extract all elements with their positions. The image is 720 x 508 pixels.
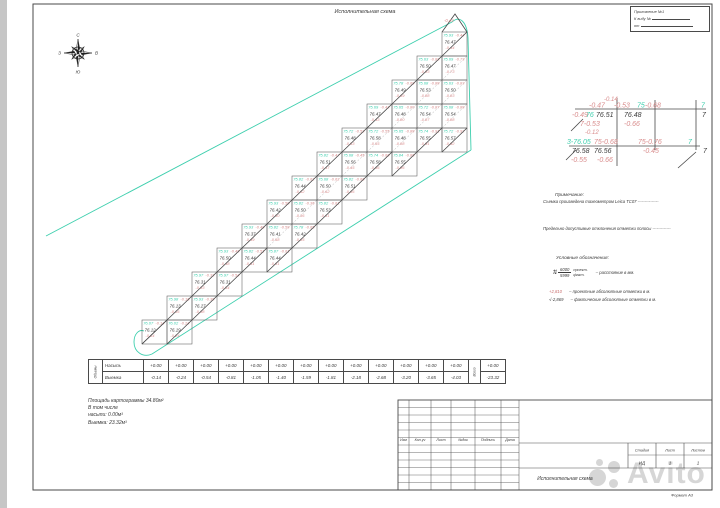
fact-elevation: 75.78 (293, 225, 304, 230)
distance-fact-value: 5999 (558, 273, 571, 278)
inset-text: 75-0.68 (594, 139, 618, 146)
work-elevation: -0.80 (405, 105, 415, 110)
inset-text: 7-0.53 (580, 121, 600, 128)
title-block-header: Кол.уч (415, 438, 426, 442)
work-elevation: -0.61 (330, 201, 339, 206)
work-elevation: -0.55 (380, 129, 390, 134)
fact-elevation: 75.72 (368, 129, 379, 134)
volumes-table: ОбъемыНасыпь+0.00+0.00+0.00+0.00+0.00+0.… (88, 359, 506, 384)
sheet-title: Исполнительная схема (280, 9, 450, 15)
design-elevation: 76.48 (395, 111, 407, 116)
fact-elevation: 75.65 (393, 129, 404, 134)
work-elevation: -0.36 (295, 213, 305, 218)
work-elevation: -0.61 (280, 249, 289, 254)
fact-elevation: 75.63 (418, 57, 429, 62)
fact-elevation: 75.82 (293, 201, 304, 206)
title-block-header: Лист (435, 438, 445, 442)
notes-block: Примечание: Съемка произведена тахеометр… (543, 193, 718, 204)
notes-heading: Примечание: (555, 193, 718, 198)
design-elevation: 76.58 (370, 135, 382, 140)
fact-elevation: 75.98 (168, 297, 179, 302)
distance-fraction: 6000 5999 (558, 267, 571, 278)
design-elevation: 76.53 (420, 87, 432, 92)
work-elevation: -0.88 (445, 117, 455, 122)
cut-value: -0.14 (143, 372, 168, 384)
watermark-text: Avito (627, 457, 706, 491)
cut-value: -1.81 (318, 372, 343, 384)
fill-value: +0.00 (418, 360, 443, 372)
design-elevation: 76.41 (270, 231, 282, 236)
fill-value: +0.00 (368, 360, 393, 372)
design-elevation: 76.48 (395, 135, 407, 140)
work-elevation: -0.88 (430, 81, 440, 86)
fact-elevation: 76.02 (168, 321, 179, 326)
cut-value: -4.03 (443, 372, 468, 384)
cut-value: -2.68 (368, 372, 393, 384)
compass-west-label: З (58, 51, 61, 56)
fill-value: +0.00 (243, 360, 268, 372)
work-elevation: -0.73 (445, 69, 455, 74)
work-elevation: -0.83 (455, 81, 465, 86)
work-elevation: -0.62 (320, 189, 330, 194)
fact-elevation: 75.68 (418, 81, 429, 86)
work-elevation: -0.80 (395, 117, 405, 122)
notes-line2: Предельно допустимые отклонения отметки … (543, 226, 718, 231)
legend-marks-item: +2,810 – проектные абсолютные отметки в … (549, 288, 656, 304)
fill-total: +0.00 (480, 360, 505, 372)
fact-elevation: 75.72 (418, 105, 429, 110)
fact-elevation: 75.82 (293, 177, 304, 182)
fact-elevation: 75.82 (318, 201, 329, 206)
fact-elevation: 75.78 (393, 81, 404, 86)
work-elevation: -0.62 (330, 177, 340, 182)
fact-elevation: 75.68 (343, 153, 354, 158)
compass-center (77, 52, 80, 55)
fill-value: +0.00 (218, 360, 243, 372)
cut-value: -0.81 (218, 372, 243, 384)
design-elevation: 76.54 (420, 111, 432, 116)
inset-text: -0.66 (624, 121, 640, 128)
summary-area: Площадь картограммы 34.80м² (88, 398, 163, 405)
work-elevation: -0.91 (430, 129, 439, 134)
fill-row-label: Насыпь (102, 360, 143, 372)
fill-value: +0.00 (268, 360, 293, 372)
legend-distance-item: ⇅ 6000 5999 проект. факт. – расстояние в… (552, 267, 634, 278)
cut-value: -1.40 (268, 372, 293, 384)
fill-value: +0.00 (193, 360, 218, 372)
inset-text: 76 (586, 112, 594, 119)
fill-value: +0.00 (393, 360, 418, 372)
cut-total: -23.32 (480, 372, 505, 384)
inset-line (678, 152, 696, 168)
avito-watermark: Avito (586, 452, 706, 496)
cut-row-label: Выемка (102, 372, 143, 384)
fill-value: +0.00 (318, 360, 343, 372)
work-elevation: -0.58 (280, 225, 290, 230)
inset-text: -0.68 (645, 103, 661, 110)
work-elevation: -0.58 (270, 237, 280, 242)
fact-elevation: 75.82 (343, 177, 354, 182)
title-block-header: Изм (400, 438, 407, 442)
fact-elevation: 75.93 (218, 249, 229, 254)
design-elevation: 76.50 (320, 183, 332, 188)
fact-elevation: 75.82 (243, 249, 254, 254)
inset-text: 7 (701, 103, 706, 110)
cut-value: -3.20 (393, 372, 418, 384)
fact-elevation: 75.68 (443, 105, 454, 110)
compass-south-label: Ю (76, 70, 81, 75)
inset-text: -0.66 (597, 157, 613, 164)
summary-including: В том числе (88, 405, 163, 412)
fill-value: +0.00 (168, 360, 193, 372)
design-elevation: 76.56 (345, 159, 357, 164)
fact-elevation: 75.69 (368, 105, 379, 110)
inset-text: 76.48 (624, 112, 642, 119)
work-elevation: -0.87 (420, 117, 430, 122)
work-elevation: -0.61 (320, 213, 329, 218)
fact-elevation: 75.82 (268, 225, 279, 230)
work-elevation: -0.61 (270, 261, 279, 266)
inset-text: -0.12 (585, 130, 599, 136)
grid-roof (442, 14, 467, 32)
work-elevation: -0.51 (255, 249, 264, 254)
fact-elevation: 75.93 (443, 33, 454, 38)
fact-elevation: 75.72 (443, 129, 454, 134)
work-elevation: -0.36 (305, 201, 315, 206)
work-elevation: -0.88 (455, 105, 465, 110)
inset-text: 7 (703, 148, 708, 155)
work-elevation: -0.73 (455, 57, 465, 62)
inset-text: 75-0.76 (638, 139, 662, 146)
distance-caption: – расстояние в мм. (596, 270, 635, 275)
work-elevation: -0.83 (445, 93, 455, 98)
inset-text: 75 (637, 103, 645, 110)
work-elevation: -0.91 (420, 141, 429, 146)
area-summary: Площадь картограммы 34.80м² В том числе … (88, 398, 163, 427)
distance-fraction-labels: проект. факт. (573, 268, 587, 278)
compass-north-label: С (76, 33, 80, 38)
fact-elevation: 75.82 (318, 153, 329, 158)
fact-elevation: 75.65 (393, 105, 404, 110)
inset-text: -0.45 (643, 148, 659, 155)
fact-elevation: 75.72 (343, 129, 354, 134)
fact-elevation: 75.93 (193, 297, 204, 302)
appendix-line2: К виду № (634, 15, 706, 22)
work-elevation: -0.88 (420, 93, 430, 98)
inset-text: -0.55 (571, 157, 587, 164)
design-elevation: 76.47 (445, 63, 457, 68)
cut-value: -3.65 (418, 372, 443, 384)
design-elevation: 76.50 (445, 87, 457, 92)
fill-value: +0.00 (343, 360, 368, 372)
cut-value: -1.05 (243, 372, 268, 384)
notes-line1: Съемка произведена тахеометром Leica TC0… (543, 199, 718, 204)
volumes-side-label: Объемы (89, 360, 103, 384)
fact-elevation: 75.97 (193, 273, 204, 278)
work-elevation: -0.44 (444, 18, 454, 23)
summary-fill: насыпи: 0.00м³ (88, 412, 163, 419)
work-elevation: -0.45 (355, 153, 365, 158)
fact-elevation: 75.93 (268, 201, 279, 206)
fact-elevation: 75.69 (443, 57, 454, 62)
legend-heading: Условные обозначения: (556, 256, 609, 261)
work-elevation: -0.88 (395, 141, 405, 146)
doc-title: Исполнительная схема (537, 476, 593, 482)
inset-text: 7 (688, 139, 693, 146)
legend-fact-mark: √-2,869 – фактические абсолютные отметки… (549, 296, 656, 304)
inset-text: 7 (702, 112, 707, 119)
cut-value: -2.18 (343, 372, 368, 384)
compass-east-label: В (95, 51, 98, 56)
fact-elevation: 76.07 (143, 321, 154, 326)
design-elevation: 76.54 (445, 111, 457, 116)
fill-value: +0.00 (143, 360, 168, 372)
fill-value: +0.00 (293, 360, 318, 372)
title-block-header: Дата (504, 438, 514, 442)
cut-value: -0.24 (168, 372, 193, 384)
measure-arrows-icon: ⇅ (552, 269, 557, 276)
appendix-line1: Приложение №1 (634, 8, 706, 15)
avito-logo-icon (586, 452, 624, 496)
fact-elevation: 75.87 (268, 249, 279, 254)
legend-project-mark: +2,810 – проектные абсолютные отметки в … (549, 288, 656, 296)
title-block-header: Подпись (481, 438, 495, 442)
cut-fill-volumes-table: ОбъемыНасыпь+0.00+0.00+0.00+0.00+0.00+0.… (88, 359, 506, 384)
fact-elevation: 75.63 (443, 81, 454, 86)
work-elevation: -0.88 (405, 129, 415, 134)
total-side-label: Всего (468, 360, 480, 384)
work-elevation: -0.51 (245, 261, 254, 266)
cut-value: -1.59 (293, 372, 318, 384)
summary-cut: Выемка: 23.32м³ (88, 420, 163, 427)
fact-elevation: 75.74 (418, 129, 429, 134)
inset-text: -0.53 (614, 103, 630, 110)
appendix-corner-box: Приложение №1 К виду № от (630, 6, 710, 32)
inset-text: 3-76.05 (567, 139, 591, 146)
work-elevation: -0.55 (370, 141, 380, 146)
drawing-canvas: СВЮЗ76.07-0.1476.12-0.1475.98-0.1676.13-… (0, 0, 720, 508)
fact-elevation: 75.74 (368, 153, 379, 158)
appendix-line3: от (634, 22, 706, 29)
fact-elevation: 75.93 (243, 225, 254, 230)
fact-elevation: 75.97 (218, 273, 229, 278)
design-elevation: 76.50 (295, 207, 307, 212)
inset-text: -0.47 (589, 103, 606, 110)
work-elevation: -0.45 (345, 165, 355, 170)
work-elevation: -0.87 (430, 105, 440, 110)
inset-text: 76.51 (596, 112, 614, 119)
fill-value: +0.00 (443, 360, 468, 372)
fact-elevation: 75.84 (393, 153, 404, 158)
fact-elevation: 75.68 (318, 177, 329, 182)
inset-text: 76.58 (572, 148, 590, 155)
title-block-header: №док (458, 438, 468, 442)
cut-value: -0.54 (193, 372, 218, 384)
inset-text: 76.56 (594, 148, 612, 155)
